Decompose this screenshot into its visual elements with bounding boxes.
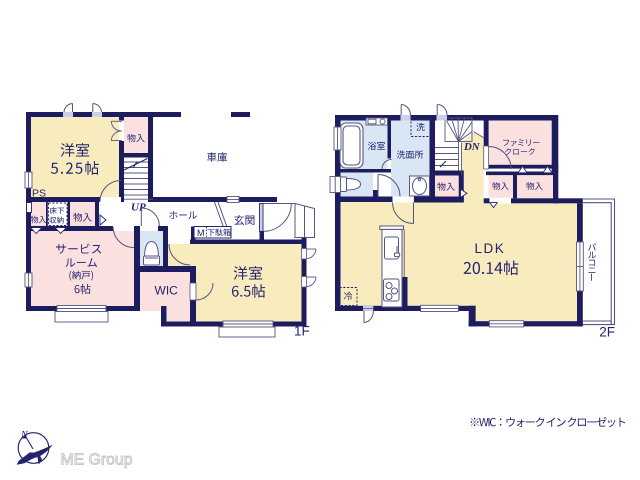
svg-text:N: N [20,430,29,441]
svg-text:LDK: LDK [475,241,506,256]
svg-text:2F: 2F [599,325,615,340]
svg-text:UP: UP [131,201,146,213]
svg-text:M: M [197,228,205,238]
svg-text:DN: DN [463,141,481,153]
svg-text:1F: 1F [294,323,310,338]
svg-text:WIC: WIC [155,284,179,298]
svg-text:ME Group: ME Group [61,451,133,468]
svg-text:PS: PS [32,188,46,200]
